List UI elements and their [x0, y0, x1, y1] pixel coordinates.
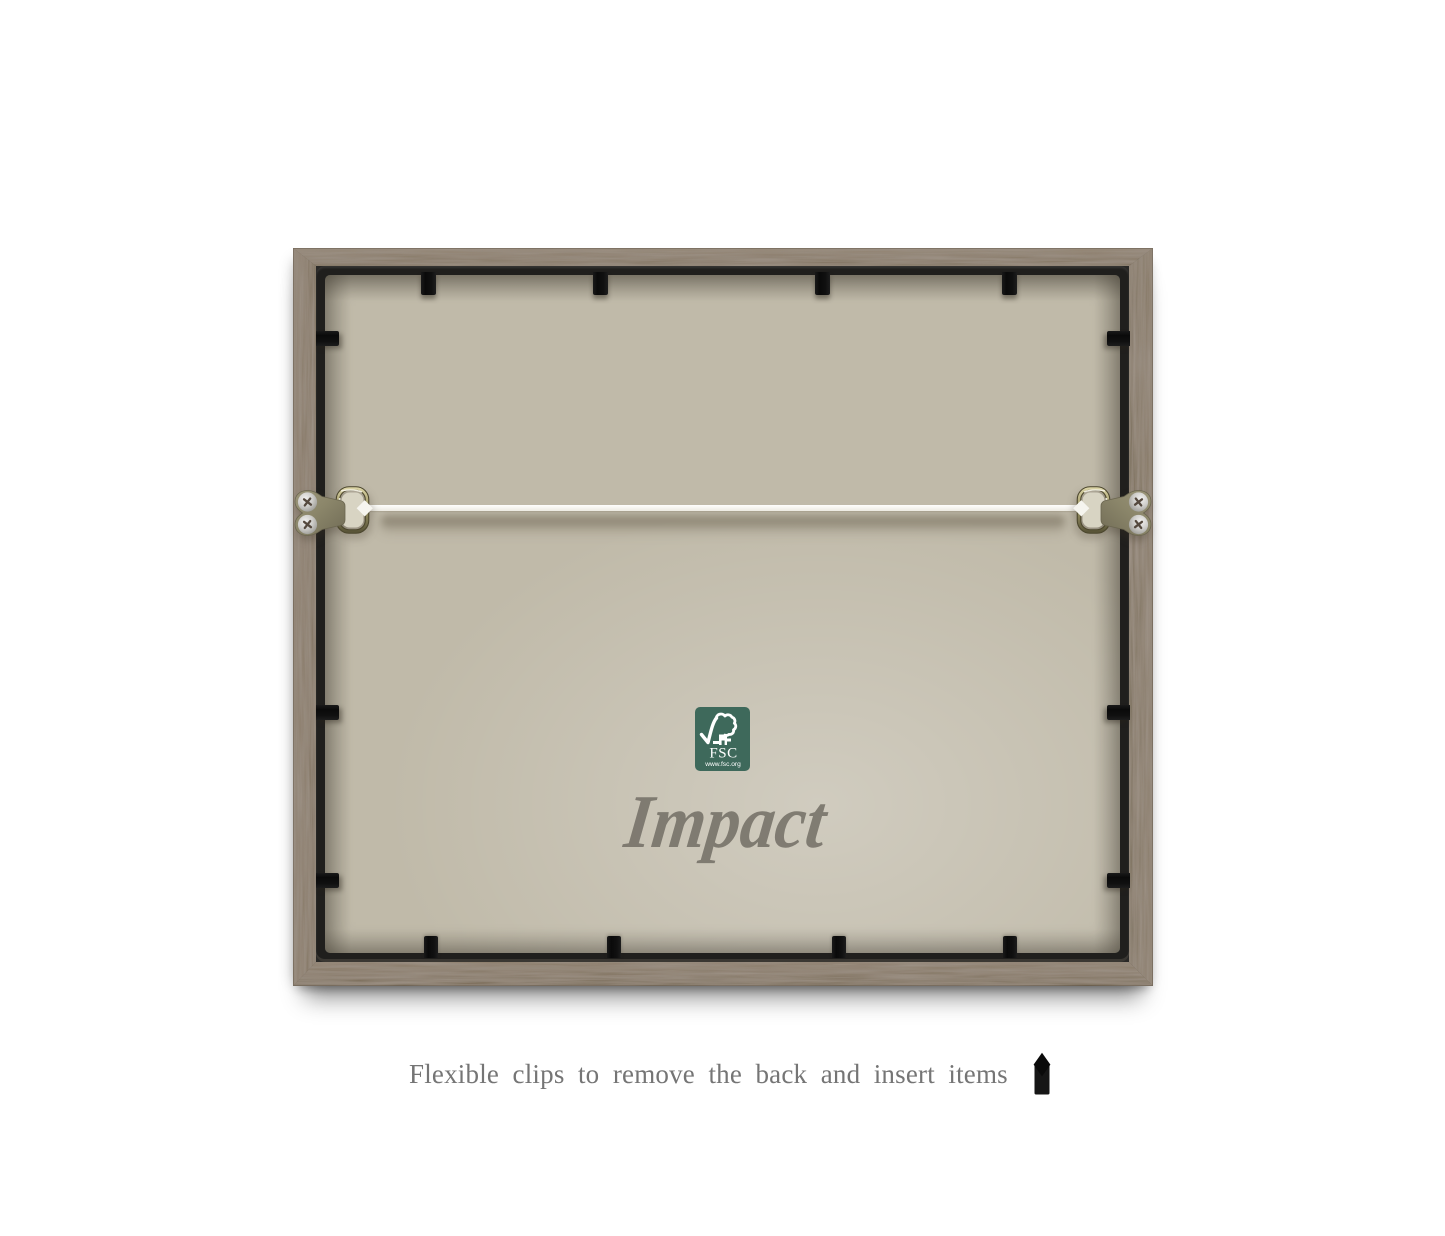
svg-text:www.fsc.org: www.fsc.org: [704, 761, 741, 768]
svg-text:FSC: FSC: [709, 746, 737, 762]
